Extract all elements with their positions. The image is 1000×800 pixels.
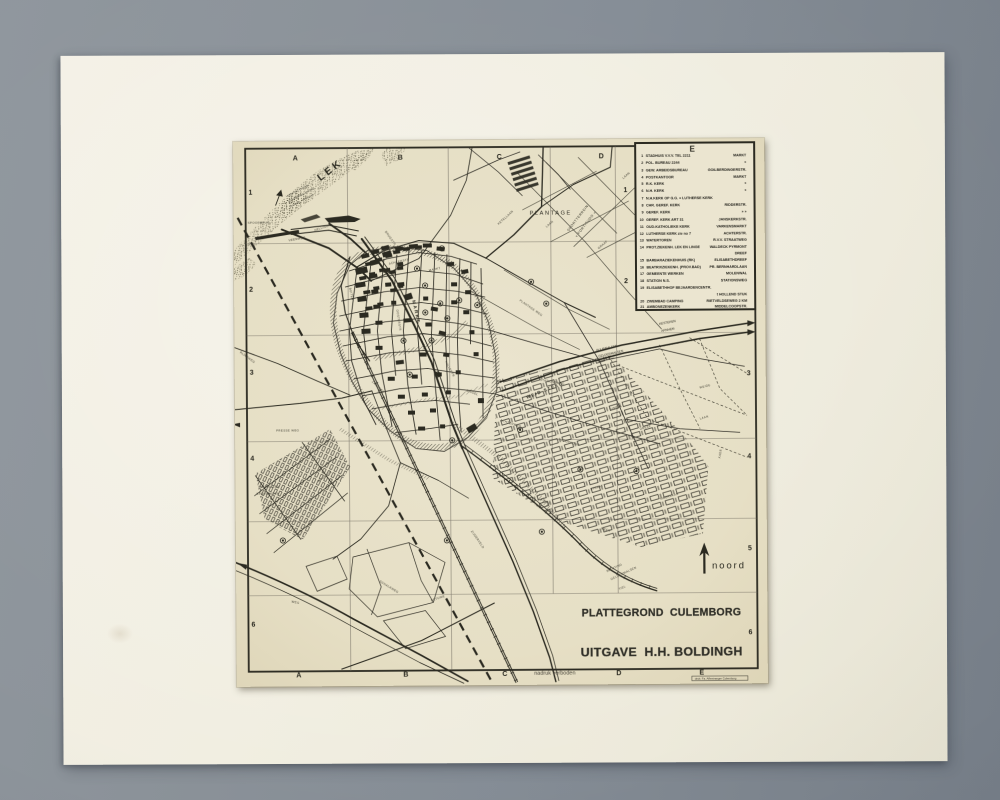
svg-text:PRESSE WEG: PRESSE WEG <box>276 428 300 432</box>
svg-text:19: 19 <box>640 286 644 290</box>
svg-text:A: A <box>296 672 301 679</box>
svg-text:»: » <box>744 160 746 164</box>
svg-text:WALDECK PYRMONT: WALDECK PYRMONT <box>710 245 748 249</box>
svg-text:GEMEENTE WERKEN: GEMEENTE WERKEN <box>647 272 685 276</box>
svg-text:SCHALKWEG: SCHALKWEG <box>379 579 400 594</box>
svg-text:R.K. KERK: R.K. KERK <box>646 182 665 186</box>
svg-text:12: 12 <box>640 232 644 236</box>
svg-text:KETELLAAN: KETELLAAN <box>497 209 515 225</box>
svg-text:ELISABETHHOF BEJAARDENCENTR.: ELISABETHHOF BEJAARDENCENTR. <box>647 286 712 290</box>
svg-text:PLANTAGE WEG: PLANTAGE WEG <box>519 298 544 317</box>
svg-text:BARBARAZIEKENHUIS (RK): BARBARAZIEKENHUIS (RK) <box>646 258 695 262</box>
svg-text:5: 5 <box>748 545 752 552</box>
svg-text:1: 1 <box>641 154 643 158</box>
svg-text:ZWEMBAD CAMPING: ZWEMBAD CAMPING <box>647 299 684 303</box>
svg-text:E: E <box>699 670 704 677</box>
svg-text:15: 15 <box>640 258 644 262</box>
svg-text:PLATTEGROND CULEMBORG: PLATTEGROND CULEMBORG <box>582 606 742 619</box>
svg-text:R.V.V. STRAATWEG: R.V.V. STRAATWEG <box>713 238 747 242</box>
svg-text:JANSKERKSTR.: JANSKERKSTR. <box>719 217 747 221</box>
svg-text:4: 4 <box>747 453 751 460</box>
svg-text:1: 1 <box>623 187 627 194</box>
svg-text:GEREF. KERK ART 31: GEREF. KERK ART 31 <box>646 218 683 222</box>
svg-text:KESTEREN: KESTEREN <box>659 319 676 326</box>
svg-text:VEERWEG: VEERWEG <box>288 235 306 242</box>
svg-text:nadruk verboden: nadruk verboden <box>534 670 575 676</box>
svg-text:STADHUIS V.V.V. TEL 2211: STADHUIS V.V.V. TEL 2211 <box>646 154 691 158</box>
svg-text:3: 3 <box>641 168 643 172</box>
svg-text:GOILBERDINGERSTR.: GOILBERDINGERSTR. <box>708 168 747 172</box>
svg-text:»: » <box>744 181 746 185</box>
svg-text:POL. BUREAU 2244: POL. BUREAU 2244 <box>646 161 680 165</box>
svg-text:UITGAVE H.H. BOLDINGH: UITGAVE H.H. BOLDINGH <box>581 644 743 659</box>
svg-text:OUD-KATHOLIEKE KERK: OUD-KATHOLIEKE KERK <box>646 225 690 229</box>
svg-text:8: 8 <box>642 203 644 207</box>
svg-text:VARKENSMARKT: VARKENSMARKT <box>716 224 747 228</box>
svg-text:2: 2 <box>641 161 643 165</box>
svg-text:MARKT: MARKT <box>733 175 747 179</box>
svg-text:GEREF. KERK: GEREF. KERK <box>646 210 671 214</box>
svg-text:6: 6 <box>641 189 643 193</box>
svg-text:4: 4 <box>250 456 254 463</box>
svg-text:B: B <box>403 672 408 679</box>
svg-text:WEG: WEG <box>291 600 300 606</box>
svg-text:3: 3 <box>250 370 254 377</box>
svg-text:STATION N.S.: STATION N.S. <box>647 279 670 283</box>
svg-text:10: 10 <box>640 218 644 222</box>
svg-text:18: 18 <box>640 279 644 283</box>
svg-text:»: » <box>744 188 746 192</box>
svg-text:CHR. GEREF. KERK: CHR. GEREF. KERK <box>646 203 680 207</box>
svg-text:SPORTTERREIN: SPORTTERREIN <box>566 204 589 232</box>
svg-text:MIDDELCOOPSTR.: MIDDELCOOPSTR. <box>715 304 748 308</box>
svg-text:D: D <box>599 153 604 160</box>
svg-text:2: 2 <box>249 287 253 294</box>
svg-text:noord: noord <box>712 560 746 571</box>
svg-text:2: 2 <box>624 278 628 285</box>
svg-text:SPOORBRUG: SPOORBRUG <box>248 221 271 225</box>
svg-text:21: 21 <box>640 305 644 309</box>
svg-text:LAAN: LAAN <box>621 171 630 180</box>
svg-text:PLANTAGE: PLANTAGE <box>530 210 572 216</box>
svg-text:PROT.ZIEKENH. LEK EN LINGE: PROT.ZIEKENH. LEK EN LINGE <box>646 245 700 249</box>
svg-text:20: 20 <box>640 299 644 303</box>
svg-text:3: 3 <box>747 370 751 377</box>
svg-text:POSTKANTOOR: POSTKANTOOR <box>646 175 674 179</box>
svg-text:PR. BERNHARDLAAN: PR. BERNHARDLAAN <box>709 265 747 269</box>
svg-text:ARNHEM: ARNHEM <box>661 326 675 332</box>
svg-text:A: A <box>293 155 298 162</box>
svg-text:D: D <box>616 670 621 677</box>
svg-text:LAAN: LAAN <box>699 414 709 420</box>
svg-text:ACHTERSTR.: ACHTERSTR. <box>724 231 747 235</box>
svg-text:MOLENWAL: MOLENWAL <box>726 271 748 275</box>
svg-text:14: 14 <box>640 245 644 249</box>
svg-text:GEW. ARBEIDSBUREAU: GEW. ARBEIDSBUREAU <box>646 168 688 172</box>
svg-text:4: 4 <box>641 175 643 179</box>
svg-text:LAAN: LAAN <box>545 220 554 229</box>
svg-text:6: 6 <box>749 629 753 636</box>
svg-text:» »: » » <box>742 210 747 214</box>
svg-text:C: C <box>502 671 507 678</box>
svg-text:TIEL: TIEL <box>618 584 627 591</box>
svg-text:LUTHERSE KERK zie no 7: LUTHERSE KERK zie no 7 <box>646 232 691 236</box>
svg-text:1: 1 <box>248 190 252 197</box>
svg-text:BUITEN: BUITEN <box>348 287 355 300</box>
svg-text:17: 17 <box>640 272 644 276</box>
svg-text:13: 13 <box>640 238 644 242</box>
svg-text:N.H.KERK OP G.G. = LUTHERSE KE: N.H.KERK OP G.G. = LUTHERSE KERK <box>646 196 713 200</box>
svg-text:MARKT: MARKT <box>428 266 441 272</box>
svg-text:5: 5 <box>641 182 643 186</box>
svg-text:STATIONSWEG: STATIONSWEG <box>721 278 747 282</box>
svg-text:MARKT: MARKT <box>733 153 747 157</box>
svg-text:9: 9 <box>642 210 644 214</box>
svg-text:BUURSTEEN: BUURSTEEN <box>258 485 279 489</box>
svg-text:ZIJDERVELD: ZIJDERVELD <box>470 530 486 550</box>
svg-text:16: 16 <box>640 265 644 269</box>
svg-text:AMBONEZENKERK: AMBONEZENKERK <box>647 305 681 309</box>
svg-text:BEATRIXZIEKENH. (PROV.BAD): BEATRIXZIEKENH. (PROV.BAD) <box>646 265 701 269</box>
svg-text:druk: Fa. Affentranger Culembo: druk: Fa. Affentranger Culemborg <box>695 676 737 680</box>
svg-text:11: 11 <box>640 225 644 229</box>
svg-text:DREEF: DREEF <box>735 251 748 255</box>
svg-text:BRUGSTR: BRUGSTR <box>384 230 397 246</box>
svg-text:N.H. KERK: N.H. KERK <box>646 189 665 193</box>
svg-text:EVERDINGEN: EVERDINGEN <box>257 492 280 496</box>
svg-text:RIETVELDSEWEG 2 KM: RIETVELDSEWEG 2 KM <box>706 299 747 303</box>
svg-text:6: 6 <box>252 622 256 629</box>
svg-text:RIDDERSTR.: RIDDERSTR. <box>725 203 747 207</box>
svg-text:E: E <box>689 145 695 154</box>
svg-text:WATERTOREN: WATERTOREN <box>646 238 672 242</box>
svg-text:WEIDE: WEIDE <box>699 383 711 390</box>
svg-text:7: 7 <box>641 196 643 200</box>
svg-text:BETUWE: BETUWE <box>430 594 445 602</box>
svg-text:t HOLLEND STUK: t HOLLEND STUK <box>717 292 748 296</box>
svg-text:KADE: KADE <box>717 449 723 459</box>
svg-text:ELISABETHDREEF: ELISABETHDREEF <box>714 258 747 262</box>
svg-text:GRAAF: GRAAF <box>597 239 609 250</box>
